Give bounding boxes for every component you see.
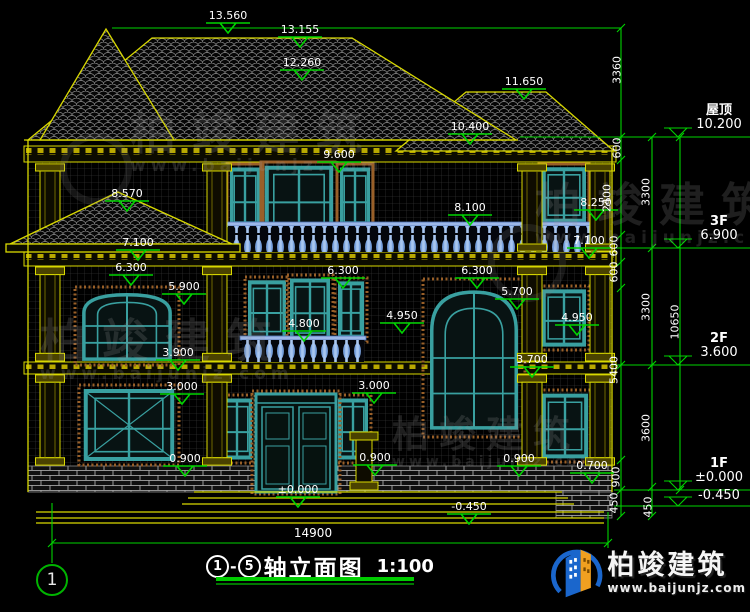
axis-end-bubble: 5	[238, 555, 261, 578]
title-underline	[216, 577, 414, 581]
title-underline-2	[216, 583, 414, 585]
brand-name: 柏竣建筑	[607, 552, 746, 579]
overall-width-dimension: 14900	[294, 526, 332, 540]
axis-separator: -	[230, 557, 237, 576]
brand-logo: 柏竣建筑 www.baijunjz.com	[547, 542, 746, 604]
brand-website: www.baijunjz.com	[607, 582, 746, 594]
axis-start-bubble: 1	[206, 555, 229, 578]
sheet-chrome: 14900 1 1 - 5 轴立面图 1:100	[0, 0, 750, 612]
brand-building-icon	[547, 542, 603, 604]
scale-label: 1:100	[377, 556, 434, 577]
cad-elevation-sheet: 柏竣建筑 www.baijunjz.com 柏竣建筑 www.baijunjz.…	[0, 0, 750, 612]
axis-grid-bubble: 1	[36, 564, 68, 596]
